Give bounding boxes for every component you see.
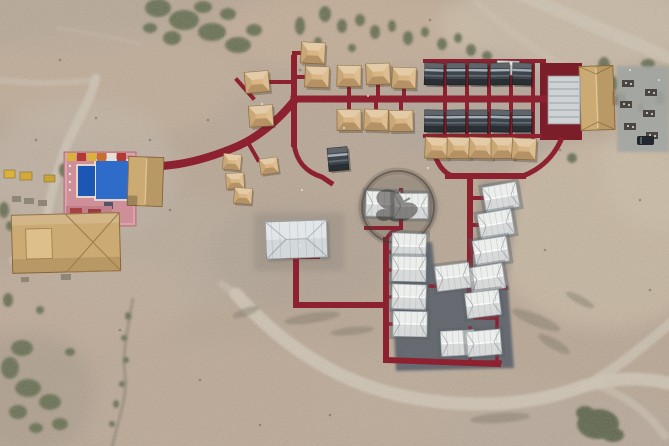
swimming-pool-small [78, 166, 95, 196]
dark-cabin [424, 110, 445, 134]
table-dot [651, 113, 653, 115]
speckle [329, 414, 332, 417]
lounger [69, 189, 71, 191]
swimming-pool-main [96, 161, 128, 199]
dark-cabin [468, 63, 489, 87]
figure-dot [367, 95, 369, 97]
golf-cart [4, 170, 15, 178]
shadow-blob [376, 209, 392, 221]
speckle [199, 379, 202, 382]
cabana [87, 153, 96, 161]
table-dot [632, 126, 634, 128]
cabana [117, 153, 126, 161]
tan-tent [259, 157, 281, 177]
tan-tent [233, 188, 254, 207]
tan-tent [389, 110, 415, 134]
table-cluster [622, 80, 634, 87]
cabana [77, 153, 86, 161]
tan-tent [244, 70, 272, 96]
golf-cart [44, 175, 55, 182]
golf-cart [20, 172, 32, 180]
lounger [69, 181, 71, 183]
dining-terrace [617, 66, 669, 152]
table-cluster [645, 89, 657, 96]
speckle [35, 139, 38, 142]
dark-cabin [447, 63, 468, 87]
table-dot [625, 82, 627, 84]
figure-dot [629, 69, 631, 71]
roof-notch [127, 195, 137, 205]
screenshot-frame [0, 0, 669, 446]
table-dot [649, 134, 651, 136]
speckle [259, 424, 262, 427]
figure-dot [261, 103, 263, 105]
dark-cabin [490, 110, 512, 135]
cabana [107, 153, 116, 161]
small-structure [38, 200, 47, 206]
tan-tent [364, 109, 391, 133]
outbuilding [61, 274, 71, 280]
outbuilding [21, 277, 29, 282]
figure-dot [427, 167, 429, 169]
table-dot [630, 83, 632, 85]
dark-cabin [446, 110, 467, 134]
speckle [95, 117, 98, 120]
speckle [119, 329, 122, 332]
white-tent [389, 308, 431, 340]
parked-car [637, 136, 654, 145]
dark-cabin [513, 110, 534, 134]
tan-tent [305, 66, 332, 90]
pavilion-shade [266, 238, 328, 259]
table-dot [623, 103, 625, 105]
speckle [59, 59, 62, 62]
dark-cabin [327, 146, 351, 173]
table-dot [654, 135, 656, 137]
pool-restaurant-building [127, 156, 164, 206]
figure-dot [299, 245, 301, 247]
table-cluster [643, 110, 655, 117]
dark-cabin [469, 110, 490, 134]
white-tent [431, 259, 475, 295]
cabana [97, 153, 106, 161]
figure-dot [343, 127, 345, 129]
white-tent [461, 286, 505, 322]
table-cluster [620, 101, 632, 108]
cabana [67, 153, 76, 161]
main-pavilion [265, 220, 329, 261]
figure-dot [658, 79, 660, 81]
tan-tent [222, 153, 243, 172]
speckle [207, 119, 210, 122]
tan-tent [392, 67, 419, 91]
speckle [429, 19, 432, 22]
speckle [169, 209, 172, 212]
white-tent [462, 326, 506, 360]
tan-tent [366, 63, 393, 87]
table-dot [628, 104, 630, 106]
ribbed-building [548, 76, 580, 124]
dark-cabin [512, 63, 534, 88]
table-cluster [624, 123, 636, 130]
lounger [69, 165, 71, 167]
dark-cabin [424, 63, 446, 88]
table-dot [646, 112, 648, 114]
dark-cabin [490, 63, 511, 87]
lounger [69, 173, 71, 175]
roof-shade [145, 157, 164, 207]
tan-tent [511, 138, 538, 163]
figure-dot [301, 189, 303, 191]
speckle [299, 69, 302, 72]
white-tent [388, 253, 430, 285]
speckle [544, 249, 547, 252]
aerial-photo [0, 0, 669, 446]
roof-ridge-rect [26, 228, 53, 259]
speckle [639, 199, 642, 202]
small-structure [12, 196, 21, 202]
table-dot [648, 91, 650, 93]
small-structure [24, 198, 34, 204]
speckle [559, 149, 562, 152]
tan-tent [300, 42, 327, 67]
table-dot [653, 92, 655, 94]
speckle [649, 289, 652, 292]
tan-tent [337, 65, 363, 89]
car-body [637, 136, 654, 145]
tan-tent [337, 110, 363, 134]
speckle [149, 139, 152, 142]
table-dot [627, 125, 629, 127]
tan-tent [248, 105, 276, 130]
